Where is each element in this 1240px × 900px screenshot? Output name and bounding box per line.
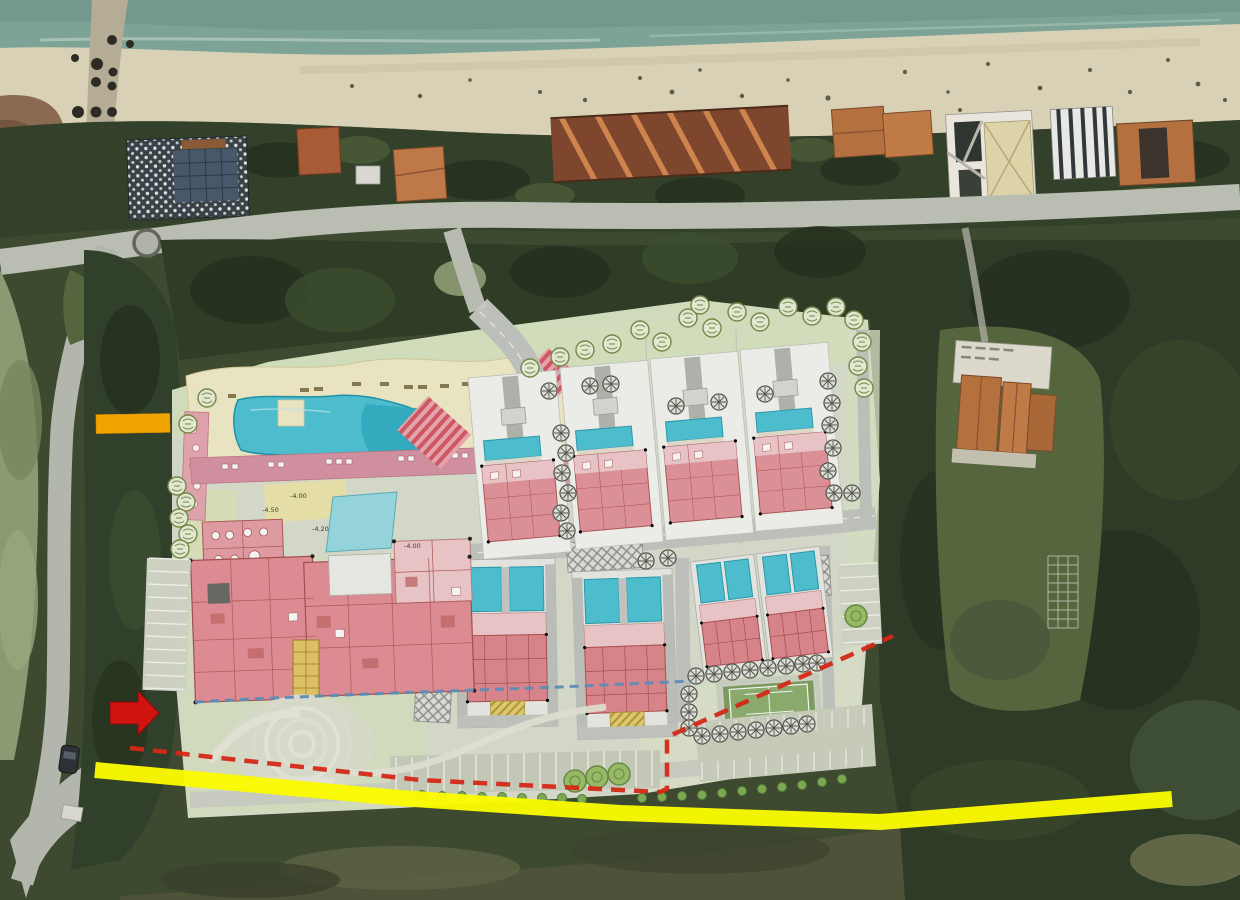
- dark-building-solar: [127, 136, 250, 220]
- elevation-label: -4.00: [290, 492, 307, 500]
- parked-car: [58, 745, 80, 774]
- elevation-label: -4.50: [262, 506, 279, 514]
- scene-canvas: -4.00 -4.50 -4.20 -4.00: [0, 0, 1240, 900]
- villa-plot-3: [650, 351, 754, 540]
- lagoon-pond: [326, 492, 397, 552]
- orange-highlight-dash: [96, 413, 170, 433]
- parking-right: [838, 562, 882, 646]
- roundabout-circle: [134, 230, 160, 256]
- elevation-label: -4.20: [312, 525, 329, 533]
- villa-plot-4: [740, 342, 844, 531]
- aerial-overview: -4.00 -4.50 -4.20 -4.00: [0, 0, 1240, 900]
- elevation-label: -4.00: [404, 542, 421, 550]
- townhouse-block-b: [572, 569, 678, 740]
- parking-left: [142, 558, 191, 691]
- white-vehicle: [61, 804, 83, 821]
- villa-plot-1: [468, 370, 572, 559]
- site-plan: -4.00 -4.50 -4.20 -4.00: [142, 296, 882, 818]
- striped-building: [1050, 106, 1116, 179]
- sawtooth-building: [550, 106, 791, 182]
- neighbor-house: [948, 340, 1060, 469]
- pool-island-deck: [278, 400, 304, 426]
